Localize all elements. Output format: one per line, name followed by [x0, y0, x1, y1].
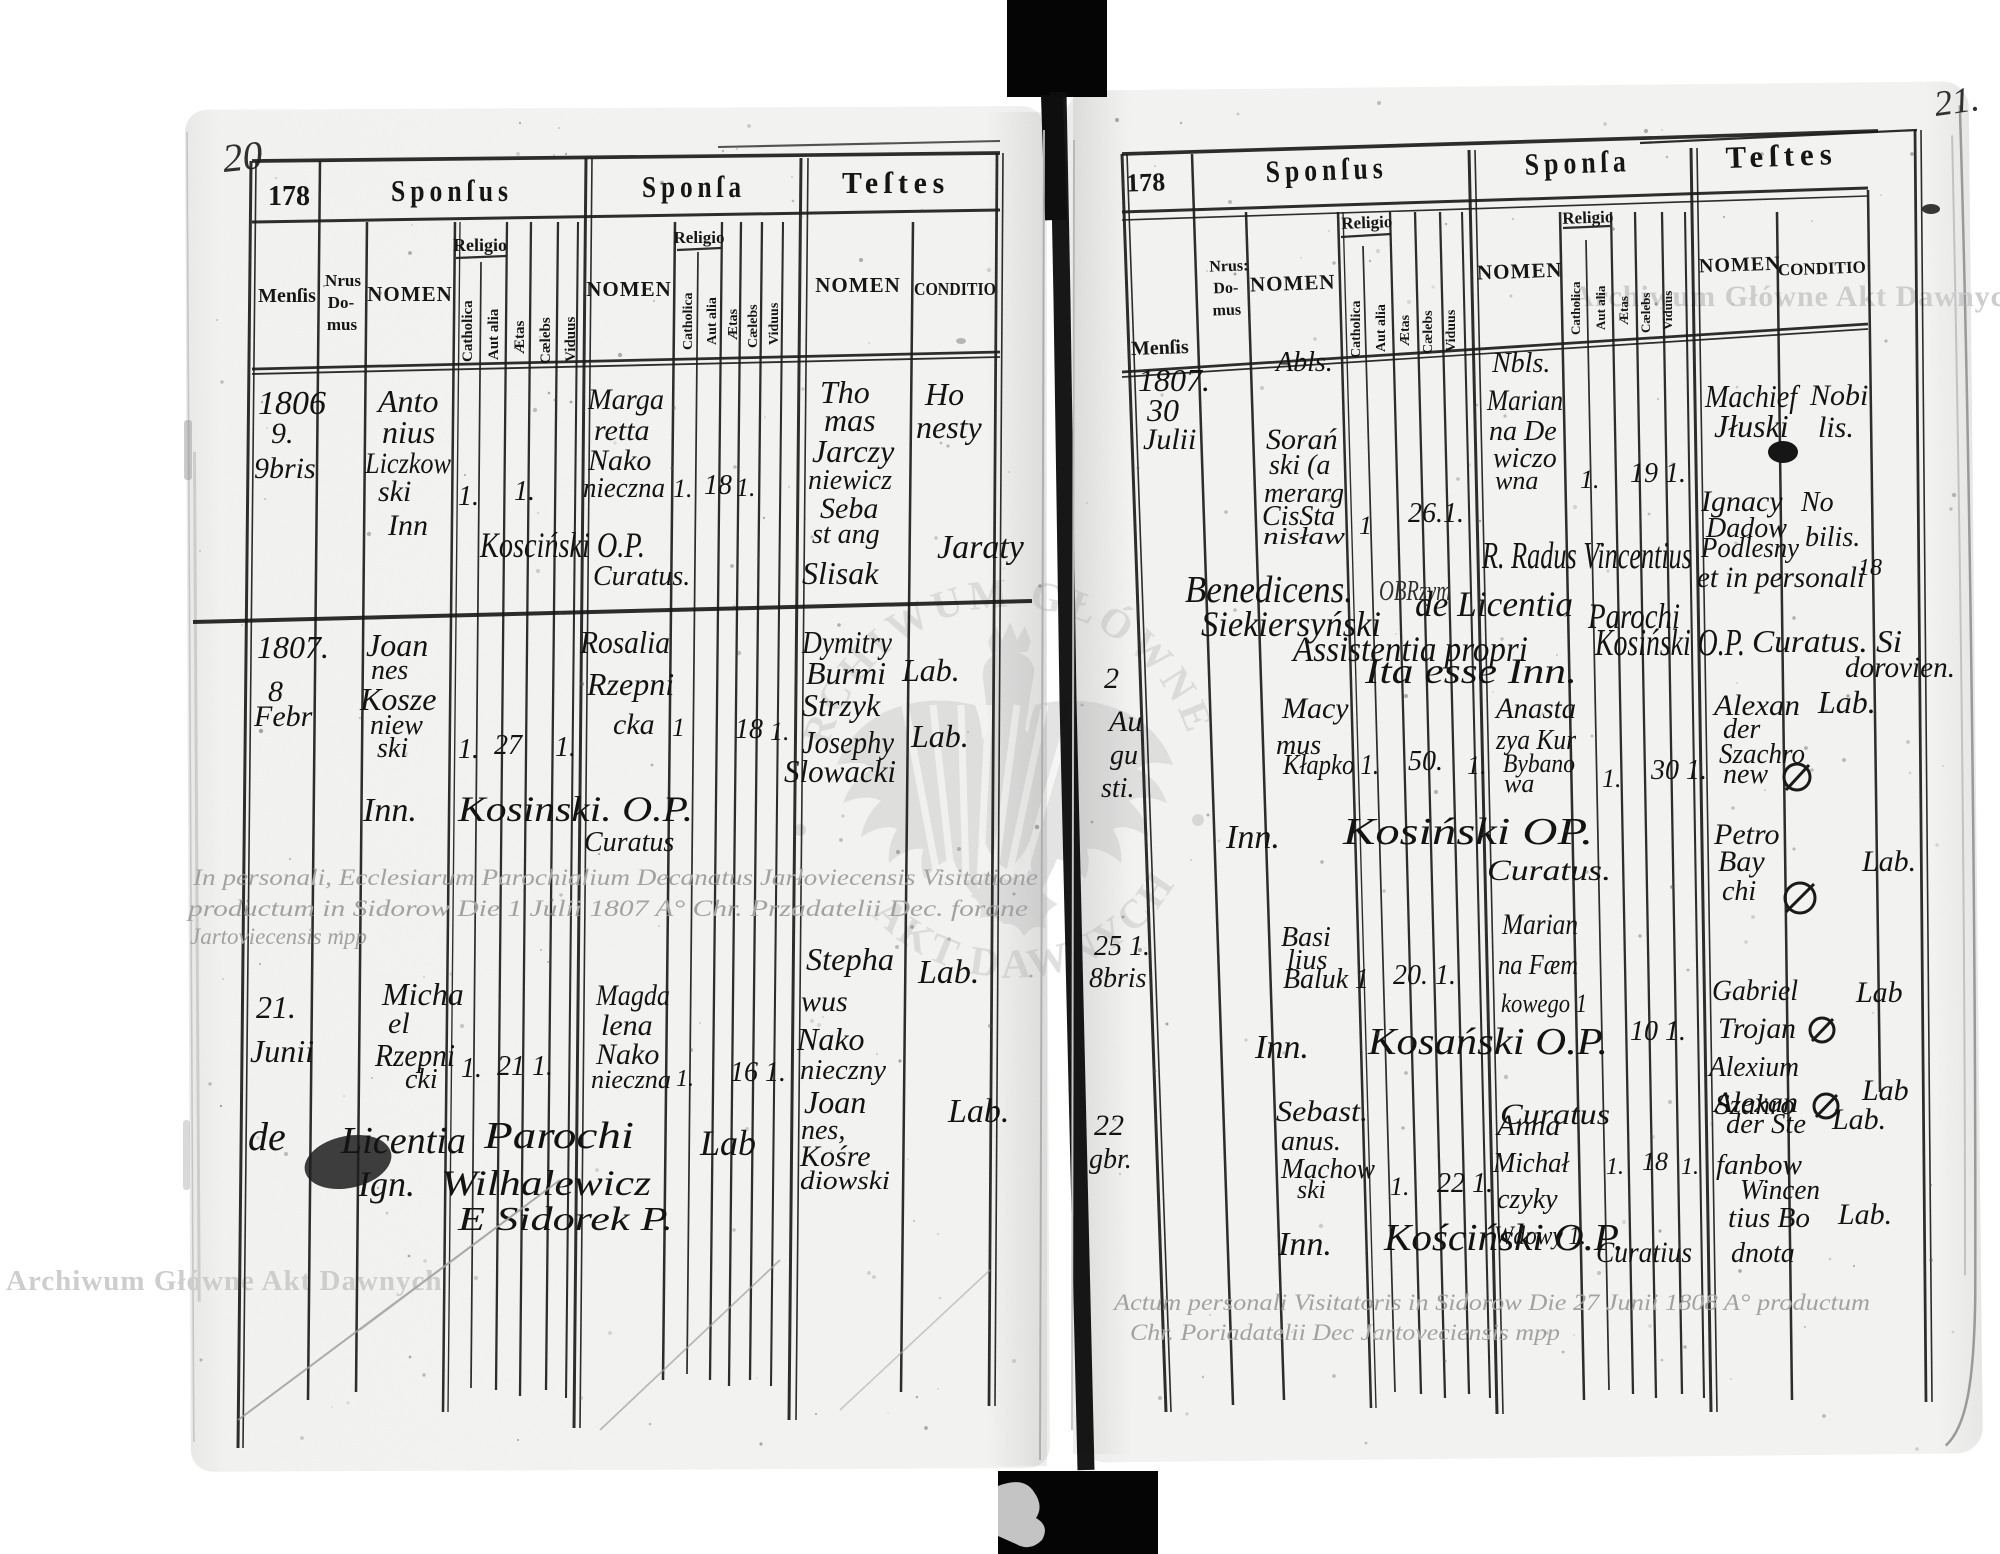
svg-text:21.: 21. — [256, 989, 296, 1025]
svg-text:Cælebs: Cælebs — [1421, 310, 1436, 354]
svg-text:Religio: Religio — [453, 235, 507, 255]
svg-text:Nrus: Nrus — [325, 271, 361, 290]
svg-text:anus.: anus. — [1281, 1126, 1341, 1157]
svg-text:Catholica: Catholica — [460, 300, 476, 362]
svg-text:Lab.: Lab. — [917, 954, 979, 991]
svg-text:1.: 1. — [461, 1053, 482, 1084]
svg-text:22: 22 — [1094, 1109, 1124, 1142]
svg-text:178: 178 — [1126, 167, 1166, 197]
svg-text:chi: chi — [1722, 876, 1756, 907]
svg-text:Jartoviecensis mpp: Jartoviecensis mpp — [190, 924, 367, 949]
svg-text:Wilhalewicz: Wilhalewicz — [441, 1163, 651, 1203]
svg-text:Do-: Do- — [328, 293, 355, 312]
svg-text:9.: 9. — [271, 417, 294, 450]
svg-text:Gabriel: Gabriel — [1712, 974, 1798, 1007]
svg-text:Sponſus: Sponſus — [391, 173, 513, 208]
svg-text:21.: 21. — [1932, 78, 1982, 124]
svg-text:Marian: Marian — [1501, 908, 1578, 941]
svg-text:new: new — [1723, 759, 1768, 790]
svg-text:Chr. Poriadatelii Dec Jartove: Chr. Poriadatelii Dec Jartoveciensis mpp — [1130, 1320, 1560, 1345]
svg-text:Sponſus: Sponſus — [1265, 150, 1388, 189]
svg-text:No: No — [1800, 487, 1834, 518]
svg-text:1.: 1. — [1681, 1154, 1699, 1180]
svg-text:Ætas: Ætas — [1398, 314, 1413, 346]
svg-text:Cælebs: Cælebs — [538, 317, 554, 364]
svg-text:Lab.: Lab. — [910, 718, 969, 754]
svg-text:10 1.: 10 1. — [1630, 1016, 1686, 1047]
svg-text:Jaraty: Jaraty — [937, 529, 1025, 566]
svg-text:cka: cka — [613, 708, 655, 741]
svg-text:Marga: Marga — [587, 383, 664, 416]
svg-text:Ho: Ho — [924, 376, 964, 412]
svg-text:Kłapko 1.: Kłapko 1. — [1282, 750, 1379, 781]
svg-text:Ætas: Ætas — [1616, 296, 1631, 325]
svg-text:Parochi: Parochi — [483, 1115, 634, 1157]
svg-text:Curatus.: Curatus. — [1487, 854, 1611, 887]
svg-text:22 1.: 22 1. — [1437, 1168, 1493, 1199]
svg-text:retta: retta — [594, 414, 650, 447]
svg-text:der Ste: der Ste — [1726, 1109, 1806, 1140]
svg-text:Rosalia: Rosalia — [579, 624, 670, 660]
svg-text:ski (a: ski (a — [1269, 450, 1330, 481]
svg-text:NOMEN: NOMEN — [586, 277, 672, 301]
svg-text:18: 18 — [735, 714, 763, 745]
svg-text:de: de — [248, 1114, 286, 1159]
svg-text:Aut alia: Aut alia — [1374, 304, 1389, 352]
svg-text:Curatius: Curatius — [1596, 1236, 1692, 1269]
svg-text:Viduus: Viduus — [1444, 309, 1459, 352]
svg-text:na Fæm: na Fæm — [1498, 950, 1578, 981]
svg-text:NOMEN: NOMEN — [1699, 253, 1781, 278]
svg-text:lis.: lis. — [1818, 411, 1854, 444]
svg-text:Junii: Junii — [250, 1033, 314, 1069]
svg-text:Viduus: Viduus — [563, 317, 579, 362]
svg-text:1.: 1. — [770, 717, 790, 746]
svg-text:Macy: Macy — [1281, 692, 1349, 725]
svg-text:1.: 1. — [1606, 1154, 1624, 1180]
svg-text:Anasta: Anasta — [1494, 692, 1576, 725]
svg-text:Bay: Bay — [1718, 845, 1765, 878]
svg-text:1.: 1. — [1580, 465, 1600, 494]
svg-text:dorovien.: dorovien. — [1845, 651, 1955, 684]
svg-text:nieczny: nieczny — [800, 1055, 887, 1086]
svg-text:Viduus: Viduus — [767, 302, 782, 345]
svg-text:nius: nius — [382, 414, 435, 450]
svg-text:Ign.: Ign. — [357, 1164, 415, 1204]
svg-text:25 1.: 25 1. — [1094, 931, 1150, 962]
svg-text:Kosinski. O.P.: Kosinski. O.P. — [457, 789, 693, 829]
svg-text:Nrus:: Nrus: — [1209, 257, 1249, 275]
svg-text:Podlesny: Podlesny — [1700, 533, 1799, 564]
svg-text:1.: 1. — [736, 473, 756, 502]
svg-text:Strzyk: Strzyk — [802, 687, 881, 723]
svg-text:Anna: Anna — [1495, 1109, 1560, 1142]
svg-text:dnota: dnota — [1731, 1238, 1795, 1269]
svg-text:Aut alia: Aut alia — [1593, 285, 1608, 330]
svg-text:1.: 1. — [458, 734, 479, 765]
svg-text:1.: 1. — [1602, 764, 1622, 793]
svg-text:Aut alia: Aut alia — [486, 308, 502, 360]
svg-text:el: el — [388, 1007, 410, 1040]
svg-text:Alexium: Alexium — [1707, 1052, 1799, 1083]
svg-text:1807.: 1807. — [257, 629, 329, 665]
svg-text:Ætas: Ætas — [726, 308, 741, 340]
svg-text:Lab.: Lab. — [901, 652, 960, 688]
svg-text:de Licentia: de Licentia — [1415, 584, 1573, 624]
svg-text:Ætas: Ætas — [512, 321, 528, 354]
svg-text:Wincen: Wincen — [1740, 1175, 1820, 1206]
svg-text:nieczna: nieczna — [583, 473, 665, 504]
svg-text:Marian: Marian — [1486, 384, 1563, 417]
svg-text:Burmi: Burmi — [806, 655, 886, 691]
svg-text:Teſtes: Teſtes — [1725, 136, 1838, 175]
svg-text:Magda: Magda — [595, 979, 670, 1012]
svg-text:1.: 1. — [1390, 1172, 1410, 1201]
svg-text:wus: wus — [801, 985, 848, 1018]
svg-text:26.1.: 26.1. — [1408, 498, 1464, 529]
svg-text:gu: gu — [1110, 740, 1138, 771]
svg-text:wa: wa — [1504, 769, 1534, 798]
svg-text:Inn.: Inn. — [1277, 1226, 1332, 1263]
svg-text:nisław: nisław — [1263, 524, 1345, 550]
svg-text:Inn.: Inn. — [1254, 1029, 1309, 1066]
svg-text:Inn: Inn — [387, 509, 428, 542]
svg-text:Viduus: Viduus — [1660, 291, 1675, 330]
svg-text:NOMEN: NOMEN — [1250, 270, 1336, 297]
svg-text:1.: 1. — [1467, 751, 1487, 780]
svg-text:st ang: st ang — [812, 519, 880, 550]
svg-text:In personali, Ecclesiarum Paro: In personali, Ecclesiarum Parochialium D… — [192, 865, 1038, 890]
svg-text:sti.: sti. — [1101, 773, 1134, 804]
svg-text:Teſtes: Teſtes — [842, 165, 950, 200]
svg-text:Religio: Religio — [1341, 212, 1393, 233]
svg-text:Kosciński O.P.: Kosciński O.P. — [479, 525, 645, 565]
svg-text:Baluk 1: Baluk 1 — [1283, 964, 1369, 995]
svg-text:1.: 1. — [458, 481, 479, 512]
svg-text:Religio: Religio — [674, 228, 725, 247]
svg-text:ski: ski — [1297, 1175, 1326, 1204]
svg-text:NOMEN: NOMEN — [815, 273, 901, 297]
svg-text:20. 1.: 20. 1. — [1393, 960, 1456, 991]
svg-text:Febr: Febr — [253, 700, 313, 733]
svg-text:1.: 1. — [676, 1066, 694, 1092]
svg-text:Slisak: Slisak — [802, 555, 879, 591]
svg-text:Actum personali Visitatoris in: Actum personali Visitatoris in Sidorow D… — [1112, 1290, 1870, 1315]
svg-text:Kościński O.P.: Kościński O.P. — [1383, 1217, 1624, 1259]
svg-text:1: 1 — [1359, 511, 1372, 540]
svg-text:27: 27 — [494, 730, 523, 761]
svg-text:Slowacki: Slowacki — [784, 753, 896, 789]
svg-text:Licentia: Licentia — [340, 1120, 466, 1162]
svg-text:Lab.: Lab. — [947, 1093, 1009, 1130]
svg-text:Stepha: Stepha — [806, 941, 894, 977]
svg-text:Jłuski: Jłuski — [1714, 408, 1789, 444]
svg-text:Religio: Religio — [1562, 207, 1614, 228]
svg-text:Lab: Lab — [1855, 976, 1903, 1009]
svg-text:Menſis: Menſis — [1131, 336, 1190, 360]
svg-text:gbr.: gbr. — [1089, 1144, 1132, 1175]
svg-text:Aut alia: Aut alia — [705, 297, 720, 345]
svg-text:1.: 1. — [514, 476, 535, 507]
svg-text:R. Radus Vincentius: R. Radus Vincentius — [1481, 535, 1692, 577]
svg-text:Inn.: Inn. — [1225, 819, 1280, 856]
svg-text:mus: mus — [1212, 302, 1241, 320]
svg-text:178: 178 — [268, 181, 310, 212]
svg-text:tius Bo: tius Bo — [1728, 1203, 1810, 1234]
svg-text:21 1.: 21 1. — [497, 1051, 553, 1082]
svg-text:Catholica: Catholica — [681, 292, 696, 350]
svg-text:Lab.: Lab. — [1837, 1198, 1892, 1231]
svg-text:kowego 1: kowego 1 — [1501, 989, 1587, 1018]
svg-text:1.: 1. — [673, 474, 693, 503]
svg-text:Cælebs: Cælebs — [1638, 293, 1653, 333]
svg-text:Curatus: Curatus — [584, 827, 674, 858]
svg-text:Machow: Machow — [1280, 1154, 1375, 1185]
svg-text:20: 20 — [220, 132, 264, 181]
svg-text:Lab.: Lab. — [1861, 845, 1916, 878]
svg-text:Au: Au — [1107, 705, 1142, 738]
svg-text:Kosiński O.P.: Kosiński O.P. — [1594, 622, 1745, 664]
svg-text:Nobi: Nobi — [1809, 379, 1868, 412]
svg-text:nesty: nesty — [916, 409, 983, 445]
svg-text:8bris: 8bris — [1089, 963, 1147, 994]
svg-text:bilis.: bilis. — [1805, 522, 1860, 553]
svg-text:ski: ski — [378, 475, 411, 508]
svg-text:cki: cki — [405, 1064, 438, 1095]
svg-text:Michał: Michał — [1492, 1148, 1570, 1179]
svg-text:czyky: czyky — [1497, 1184, 1558, 1215]
svg-text:Jarczy: Jarczy — [812, 433, 895, 469]
svg-text:Inn.: Inn. — [362, 792, 417, 829]
svg-text:1: 1 — [672, 713, 685, 742]
svg-text:9bris: 9bris — [254, 452, 316, 485]
svg-text:Sponſa: Sponſa — [1524, 143, 1631, 182]
svg-text:18: 18 — [704, 470, 732, 501]
svg-text:1.: 1. — [555, 732, 576, 763]
svg-text:Nbls.: Nbls. — [1491, 348, 1550, 379]
svg-text:CONDITIO: CONDITIO — [914, 279, 996, 299]
svg-text:Ita esse Inn.: Ita esse Inn. — [1364, 651, 1577, 691]
svg-text:ski: ski — [377, 733, 408, 764]
svg-text:Trojan: Trojan — [1718, 1012, 1796, 1045]
svg-text:Archiwum Główne Akt Dawnych: Archiwum Główne Akt Dawnych — [6, 1265, 443, 1297]
svg-text:Curatus.: Curatus. — [593, 561, 690, 592]
svg-text:mus: mus — [327, 315, 358, 334]
svg-text:Kosański O.P.: Kosański O.P. — [1367, 1021, 1608, 1063]
svg-text:Menſis: Menſis — [258, 285, 316, 307]
svg-text:NOMEN: NOMEN — [1477, 258, 1563, 285]
svg-text:wna: wna — [1495, 466, 1538, 495]
svg-text:16 1.: 16 1. — [730, 1057, 786, 1088]
svg-text:Nako: Nako — [796, 1021, 865, 1057]
svg-text:Catholica: Catholica — [1349, 300, 1364, 358]
svg-text:19 1.: 19 1. — [1630, 458, 1686, 489]
svg-text:2: 2 — [1104, 662, 1119, 695]
svg-text:Lab.: Lab. — [1831, 1103, 1886, 1136]
svg-text:Abls.: Abls. — [1274, 347, 1333, 378]
svg-text:Rzepni: Rzepni — [586, 666, 674, 702]
svg-text:nieczna: nieczna — [591, 1065, 671, 1094]
svg-text:Julii: Julii — [1143, 423, 1196, 456]
svg-text:CONDITIO: CONDITIO — [1778, 257, 1867, 279]
svg-text:18: 18 — [1642, 1147, 1668, 1176]
svg-text:Cælebs: Cælebs — [746, 304, 761, 348]
svg-text:Catholica: Catholica — [1568, 281, 1583, 335]
svg-text:Sponſa: Sponſa — [642, 169, 746, 204]
svg-text:Do-: Do- — [1213, 280, 1238, 298]
svg-text:50.: 50. — [1408, 746, 1443, 777]
svg-text:productum in Sidorow Die 1 Ju: productum in Sidorow Die 1 Julii 1807 A°… — [185, 896, 1028, 921]
svg-text:Kosiński OP.: Kosiński OP. — [1342, 811, 1593, 853]
svg-text:Sebast.: Sebast. — [1276, 1095, 1368, 1128]
svg-text:et in personali: et in personali — [1697, 561, 1865, 594]
svg-text:30 1.: 30 1. — [1650, 755, 1707, 786]
svg-text:Lab.: Lab. — [1817, 684, 1876, 720]
svg-text:diowski: diowski — [800, 1166, 890, 1195]
